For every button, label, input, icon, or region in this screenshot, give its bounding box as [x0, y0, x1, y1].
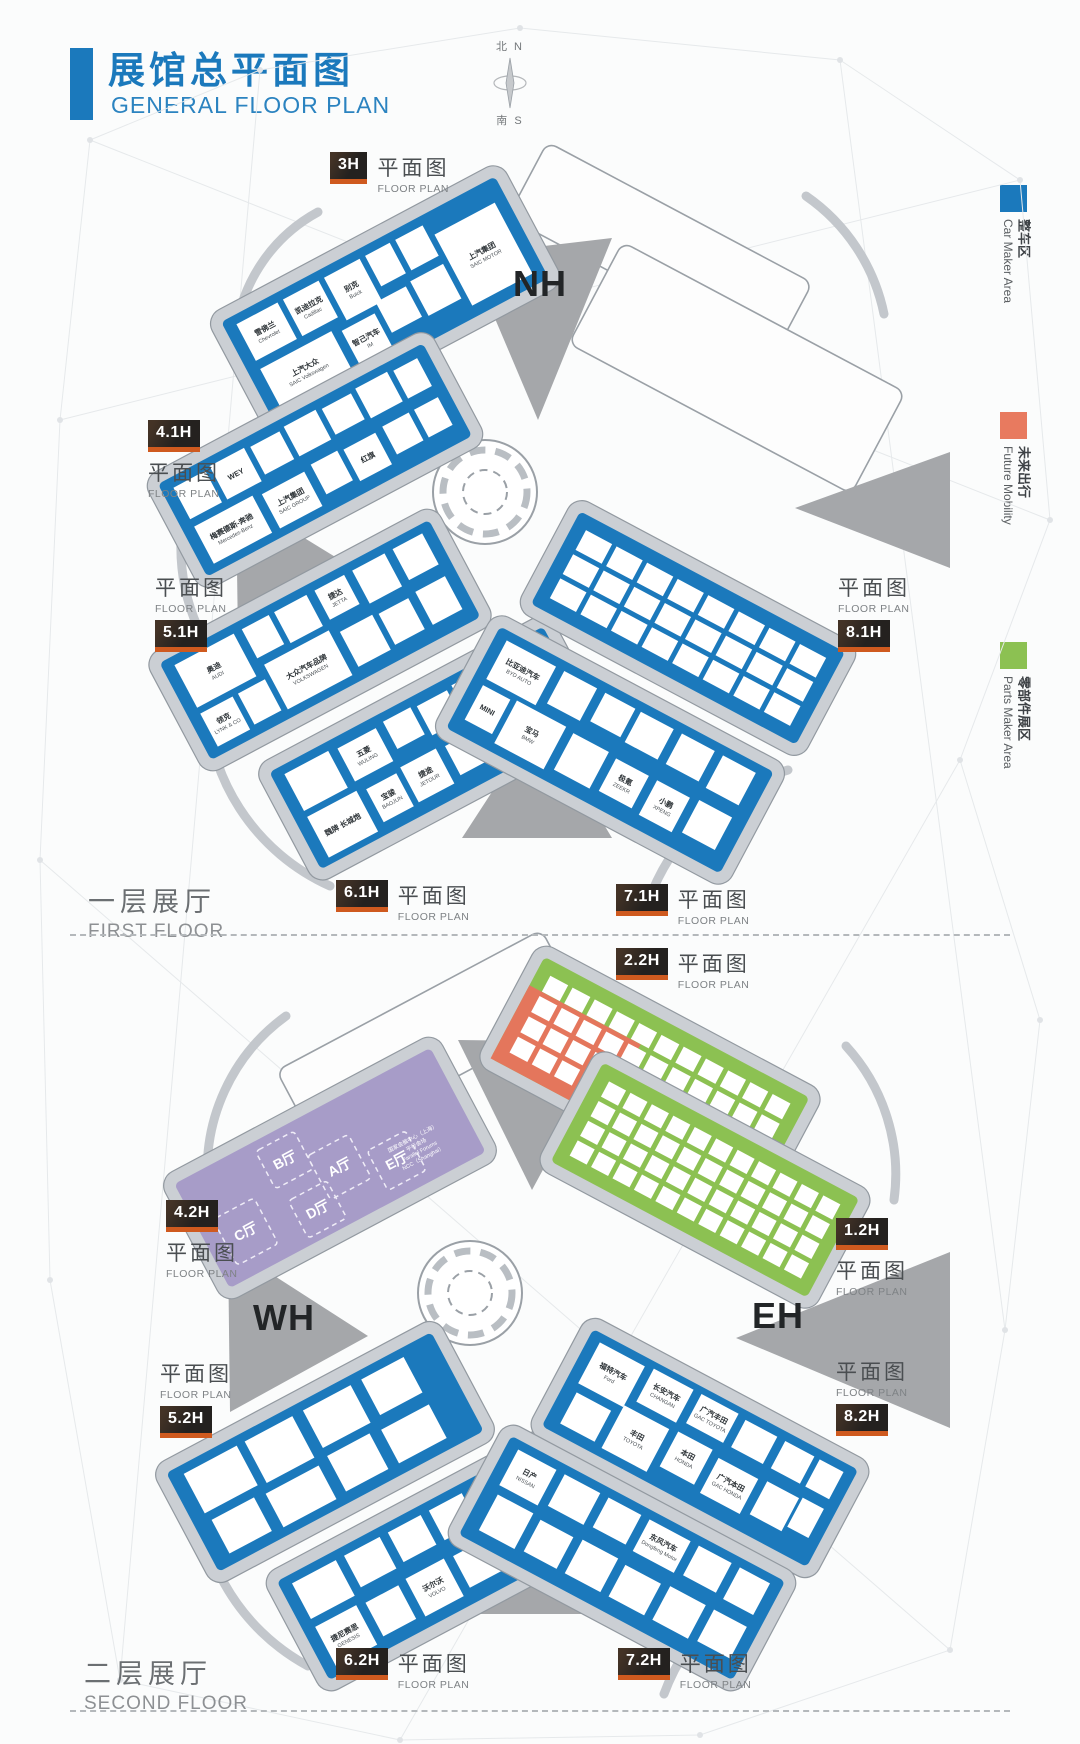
plan-label-zh: 平面图	[166, 1237, 238, 1267]
hall-badge-2.2H: 2.2H	[616, 948, 668, 980]
plan-label-zh: 平面图	[678, 948, 750, 978]
hall-label-3H: 3H平面图FLOOR PLAN	[330, 152, 449, 195]
hall-badge-4.1H: 4.1H	[148, 420, 200, 452]
plan-label-zh: 平面图	[680, 1648, 752, 1678]
plan-label-en: FLOOR PLAN	[680, 1679, 752, 1691]
hall-label-6.2H: 6.2H平面图FLOOR PLAN	[336, 1648, 470, 1691]
plan-label-zh: 平面图	[377, 152, 449, 182]
plan-label-en: FLOOR PLAN	[678, 915, 750, 927]
hall-label-7.1H: 7.1H平面图FLOOR PLAN	[616, 884, 750, 927]
plan-label-zh: 平面图	[398, 1648, 470, 1678]
hall-badge-5.2H: 5.2H	[160, 1406, 212, 1438]
plan-label-en: FLOOR PLAN	[155, 603, 227, 615]
plan-label-zh: 平面图	[398, 880, 470, 910]
hall-badge-8.1H: 8.1H	[838, 620, 890, 652]
hall-badge-1.2H: 1.2H	[836, 1218, 888, 1250]
plan-label-en: FLOOR PLAN	[160, 1389, 232, 1401]
promenade-arc	[806, 196, 884, 314]
hall-label-2.2H: 2.2H平面图FLOOR PLAN	[616, 948, 750, 991]
hall-badge-5.1H: 5.1H	[155, 620, 207, 652]
promenade-arc	[846, 1046, 896, 1200]
plan-label-en: FLOOR PLAN	[398, 911, 470, 923]
hall-label-7.2H: 7.2H平面图FLOOR PLAN	[618, 1648, 752, 1691]
hall-badge-3H: 3H	[330, 152, 367, 184]
hall-label-5.2H: 平面图FLOOR PLAN5.2H	[160, 1358, 232, 1438]
floor-plan-map: 雪佛兰Chevrolet凯迪拉克Cadillac别克Buick上汽大众SAIC …	[0, 0, 1080, 1744]
plan-label-zh: 平面图	[838, 572, 910, 602]
plan-label-en: FLOOR PLAN	[148, 488, 220, 500]
hall-label-4.2H: 4.2H平面图FLOOR PLAN	[166, 1200, 238, 1280]
area-label-WH: WH	[253, 1297, 315, 1338]
plan-label-zh: 平面图	[836, 1356, 908, 1386]
plan-label-zh: 平面图	[155, 572, 227, 602]
hall-label-1.2H: 1.2H平面图FLOOR PLAN	[836, 1218, 908, 1298]
plan-label-en: FLOOR PLAN	[836, 1286, 908, 1298]
hall-label-8.2H: 平面图FLOOR PLAN8.2H	[836, 1356, 908, 1436]
hall-label-8.1H: 平面图FLOOR PLAN8.1H	[838, 572, 910, 652]
plan-label-en: FLOOR PLAN	[398, 1679, 470, 1691]
plan-label-zh: 平面图	[836, 1255, 908, 1285]
plan-label-en: FLOOR PLAN	[166, 1268, 238, 1280]
plan-label-zh: 平面图	[160, 1358, 232, 1388]
hall-label-5.1H: 平面图FLOOR PLAN5.1H	[155, 572, 227, 652]
hall-badge-4.2H: 4.2H	[166, 1200, 218, 1232]
hall-label-4.1H: 4.1H平面图FLOOR PLAN	[148, 420, 220, 500]
hall-badge-7.2H: 7.2H	[618, 1648, 670, 1680]
hall-badge-8.2H: 8.2H	[836, 1404, 888, 1436]
hall-badge-6.1H: 6.1H	[336, 880, 388, 912]
plan-label-en: FLOOR PLAN	[836, 1387, 908, 1399]
hall-badge-6.2H: 6.2H	[336, 1648, 388, 1680]
floor-divider	[70, 934, 1010, 936]
second-floor-label: 二层展厅 SECOND FLOOR	[84, 1652, 248, 1715]
plan-label-zh: 平面图	[678, 884, 750, 914]
plan-label-zh: 平面图	[148, 457, 220, 487]
hall-badge-7.1H: 7.1H	[616, 884, 668, 916]
floor-divider	[70, 1710, 1010, 1712]
area-label-EH: EH	[752, 1295, 804, 1336]
plan-label-en: FLOOR PLAN	[678, 979, 750, 991]
plan-label-en: FLOOR PLAN	[377, 183, 449, 195]
hall-label-6.1H: 6.1H平面图FLOOR PLAN	[336, 880, 470, 923]
plan-label-en: FLOOR PLAN	[838, 603, 910, 615]
area-label-NH: NH	[513, 263, 567, 304]
